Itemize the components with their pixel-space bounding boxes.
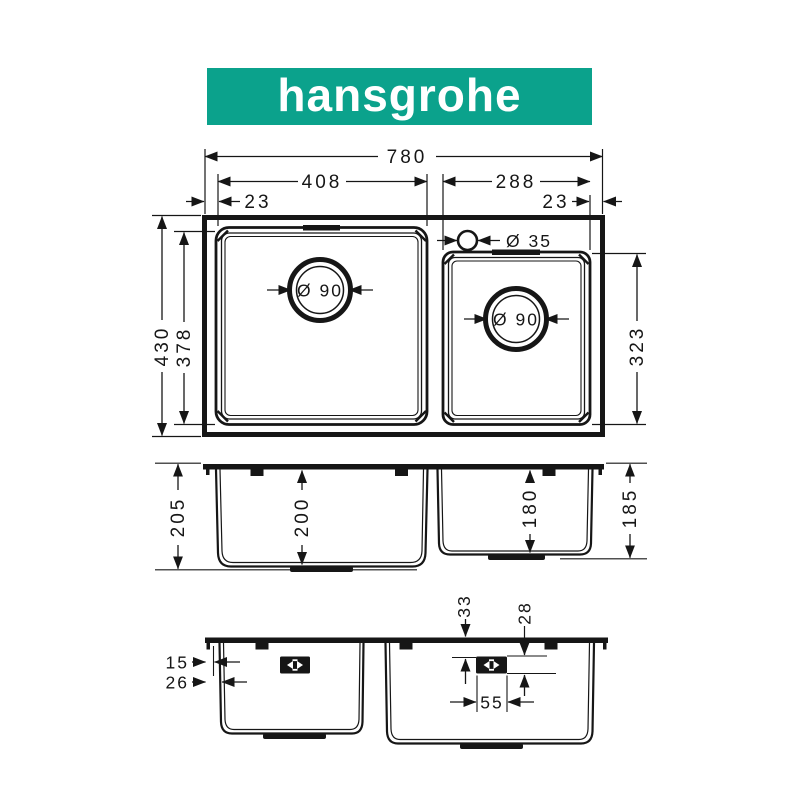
dim-overflow-drop: 28: [515, 601, 535, 624]
dim-right-outer-height: 185: [620, 488, 641, 529]
rim-bar: [203, 464, 604, 470]
dim-left-edge-gap: 23: [244, 192, 271, 213]
dim-overall-width: 780: [387, 147, 428, 168]
small-bowl-section-inner: [224, 643, 361, 730]
left-bowl-section-outer: [216, 470, 428, 567]
dim-right-bowl-height: 180: [520, 488, 541, 529]
overflow-glyph: [489, 659, 494, 661]
dim-left-drain: Ø 90: [297, 281, 343, 301]
left-bowl-plan: Ø 90: [216, 225, 427, 425]
right-bowl-plan: Ø 90: [443, 250, 590, 425]
tap-hole-circle: [458, 231, 477, 250]
mounting-clip: [251, 470, 264, 477]
mounting-clip: [256, 643, 269, 650]
dim-overflow-width: 55: [480, 693, 503, 713]
large-drain-boss: [460, 744, 523, 750]
rim-lip: [207, 643, 211, 650]
back-view: 15 26 33 28 55: [166, 594, 608, 749]
overflow-glyph: [293, 659, 298, 661]
dim-right-edge-gap: 23: [542, 192, 569, 213]
overflow-glyph: [489, 669, 494, 671]
dim-left-bowl-width: 408: [302, 172, 343, 193]
right-bowl-mid: [449, 258, 585, 420]
tap-hole: Ø 35: [437, 231, 552, 251]
rim-lip: [206, 470, 210, 476]
dim-left-outer-height: 205: [168, 497, 189, 538]
right-bowl-section-outer: [438, 470, 593, 555]
right-bowl-section-inner: [442, 470, 589, 552]
left-overflow-cutout: [280, 657, 310, 674]
dim-tap-hole: Ø 35: [506, 231, 552, 251]
overflow-rect: [476, 657, 507, 674]
dim-wall-inset: 26: [166, 673, 189, 693]
right-bowl-inner: [452, 261, 581, 416]
dim-left-bowl-height: 200: [292, 497, 313, 538]
small-drain-boss: [263, 734, 326, 740]
right-drain-boss: [488, 555, 545, 561]
rim-lip: [599, 470, 603, 476]
left-bowl-section-inner: [220, 470, 424, 563]
rim-bar: [205, 638, 608, 644]
dim-right-bowl-depth: 323: [627, 326, 648, 367]
dim-overflow-top-gap: 33: [454, 594, 474, 617]
mounting-clip: [395, 470, 408, 477]
technical-drawing: 780 408 288 23 23 430 378: [0, 0, 800, 800]
front-view: 205 200 180 185: [155, 463, 647, 572]
overflow-rect: [280, 657, 310, 674]
right-bowl-outer: [443, 252, 590, 425]
left-overflow-slot: [303, 225, 340, 231]
left-bowl-inner: [225, 237, 418, 416]
dim-rim-lip: 15: [166, 653, 189, 673]
sink-dimension-sheet: hansgrohe 780: [0, 0, 800, 800]
right-overflow-cutout: [476, 657, 507, 674]
overflow-glyph: [293, 669, 298, 671]
rim-lip: [603, 643, 607, 650]
mounting-clip: [545, 643, 558, 650]
mounting-clip: [543, 470, 556, 477]
top-view: 780 408 288 23 23 430 378: [152, 147, 648, 437]
dim-left-bowl-depth: 378: [174, 327, 195, 368]
dim-right-drain: Ø 90: [493, 310, 539, 330]
dim-right-bowl-width: 288: [496, 172, 537, 193]
mounting-clip: [400, 643, 413, 650]
dim-overall-depth: 430: [152, 326, 173, 367]
